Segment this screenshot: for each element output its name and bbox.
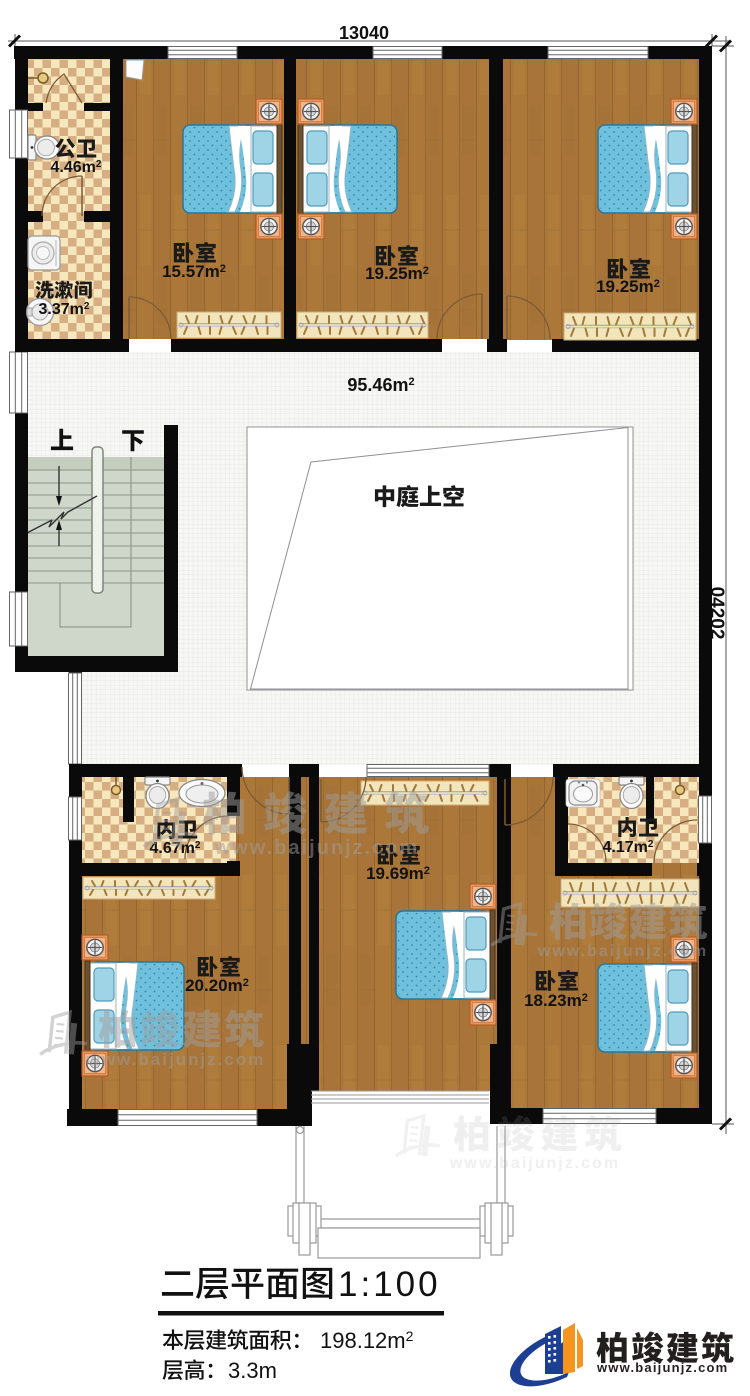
svg-text:www.baijunjz.com: www.baijunjz.com [537,943,708,960]
svg-text:www.baijunjz.com: www.baijunjz.com [449,1155,620,1172]
svg-text:3.37m2: 3.37m2 [39,301,90,318]
svg-text:15.57m2: 15.57m2 [162,262,226,281]
svg-text:19.25m2: 19.25m2 [365,264,429,283]
svg-text:198.12m2: 198.12m2 [320,1328,414,1353]
svg-text:18.23m2: 18.23m2 [524,991,588,1010]
svg-text:www.baijunjz.com: www.baijunjz.com [86,1050,266,1069]
svg-text:4.67m2: 4.67m2 [150,840,201,857]
svg-text:www.baijunjz.com: www.baijunjz.com [214,837,420,859]
svg-text:4.17m2: 4.17m2 [603,839,654,856]
svg-text:4.46m2: 4.46m2 [51,159,102,176]
svg-text:95.46m2: 95.46m2 [347,375,414,395]
svg-text:3.3m: 3.3m [228,1358,277,1383]
svg-text:19.69m2: 19.69m2 [366,864,430,883]
svg-text:20.20m2: 20.20m2 [185,976,249,995]
svg-text:www.baijunjz.com: www.baijunjz.com [596,1360,728,1375]
svg-text:13040: 13040 [339,23,389,43]
svg-text:1:100: 1:100 [338,1265,441,1304]
svg-text:19.25m2: 19.25m2 [596,277,660,296]
